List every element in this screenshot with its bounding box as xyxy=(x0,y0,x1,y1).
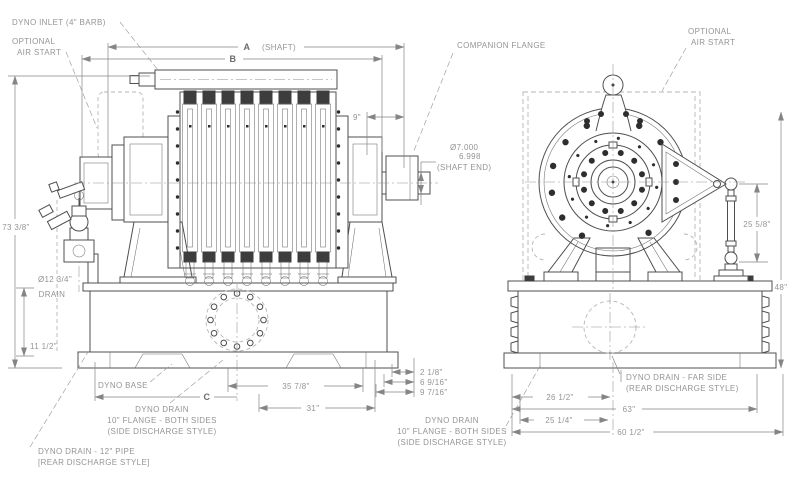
dim-a-note: (SHAFT) xyxy=(262,43,296,52)
companion-flange-part xyxy=(386,156,418,200)
left-view: A (SHAFT) B 9" 73 3/8" 11 1/2" xyxy=(2,18,545,467)
optional-air-start-left-2: AIR START xyxy=(17,48,61,57)
drain-flange-callout-right-2: 10" FLANGE - BOTH SIDES xyxy=(397,427,507,436)
dim-base-height: 11 1/2" xyxy=(30,342,57,351)
drain-pipe-callout-1: DYNO DRAIN - 12" PIPE xyxy=(38,447,135,456)
dim-9in: 9" xyxy=(353,113,361,122)
dim-35-78: 35 7/8" xyxy=(282,382,310,391)
dim-60-12: 60 1/2" xyxy=(617,428,645,437)
dim-9-716: 9 7/16" xyxy=(420,388,448,397)
dyno-dimension-drawing: A (SHAFT) B 9" 73 3/8" 11 1/2" xyxy=(0,0,800,483)
drain-dia-label-1: Ø12 3/4" xyxy=(38,275,72,284)
dyno-inlet-label: DYNO INLET (4" BARB) xyxy=(12,18,106,27)
drain-flange-callout-3: (SIDE DISCHARGE STYLE) xyxy=(107,427,216,436)
dyno-base-label: DYNO BASE xyxy=(98,381,148,390)
right-view: 25 5/8" 48" 26 1/2" 63" 25 1/4" 60 1/ xyxy=(397,27,787,447)
bearing-pedestals-left-view xyxy=(120,222,396,283)
dim-link-length: 25 5/8" xyxy=(743,220,771,229)
dyno-base-right xyxy=(504,276,776,368)
base-side-tabs-left xyxy=(511,296,518,353)
dim-2-18: 2 1/8" xyxy=(420,368,443,377)
absorber-housing xyxy=(176,91,340,286)
dim-a-label: A xyxy=(244,42,251,52)
dim-6-916: 6 9/16" xyxy=(420,378,448,387)
drain-pipe-callout-2: [REAR DISCHARGE STYLE] xyxy=(38,458,150,467)
pedestal-right-view xyxy=(532,234,697,281)
dim-26-12: 26 1/2" xyxy=(546,393,574,402)
torque-arm xyxy=(662,144,726,222)
dim-overall-48: 48" xyxy=(775,283,788,292)
load-cell-link xyxy=(714,178,748,281)
base-side-tabs-right xyxy=(762,296,769,353)
dim-c-label: C xyxy=(204,392,211,402)
shaft-dia-upper: Ø7.000 xyxy=(450,143,479,152)
companion-flange-label: COMPANION FLANGE xyxy=(457,41,546,50)
drawing-canvas: A (SHAFT) B 9" 73 3/8" 11 1/2" xyxy=(0,0,800,483)
dim-63: 63" xyxy=(623,405,636,414)
dim-25-14: 25 1/4" xyxy=(545,416,573,425)
shaft-dia-lower: 6.998 xyxy=(459,152,481,161)
lifting-eye xyxy=(584,75,643,131)
drain-flange-callout-1: DYNO DRAIN xyxy=(135,405,189,414)
dim-31: 31" xyxy=(307,404,320,413)
optional-air-start-right-2: AIR START xyxy=(691,38,735,47)
drain-far-side-2: (REAR DISCHARGE STYLE) xyxy=(626,384,739,393)
drain-dia-label-2: DRAIN xyxy=(39,290,66,299)
dim-overall-height: 73 3/8" xyxy=(2,223,30,232)
drain-far-side-1: DYNO DRAIN - FAR SIDE xyxy=(626,373,727,382)
inlet-barb xyxy=(139,73,155,86)
right-view-callouts: OPTIONAL AIR START DYNO DRAIN - FAR SIDE… xyxy=(397,27,738,447)
inlet-manifold xyxy=(130,70,337,89)
optional-air-start-right-1: OPTIONAL xyxy=(688,27,731,36)
drain-flange-callout-2: 10" FLANGE - BOTH SIDES xyxy=(107,416,217,425)
drain-flange-callout-right-3: (SIDE DISCHARGE STYLE) xyxy=(397,438,506,447)
drain-flange-callout-right-1: DYNO DRAIN xyxy=(425,416,479,425)
dim-b-label: B xyxy=(230,54,237,64)
shaft-end-note: (SHAFT END) xyxy=(437,163,491,172)
optional-air-start-left-1: OPTIONAL xyxy=(12,37,55,46)
